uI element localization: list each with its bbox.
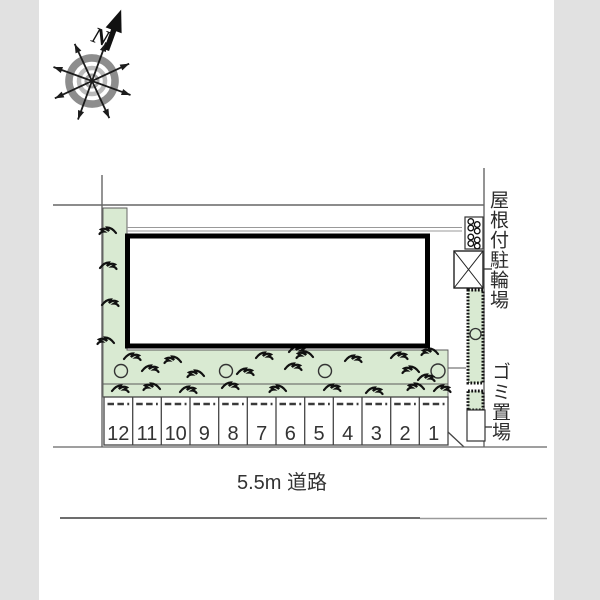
compass: N <box>39 0 156 134</box>
site-plan-page: N <box>0 0 600 600</box>
stall-number: 4 <box>342 423 353 445</box>
stall-number: 1 <box>428 423 439 445</box>
label-garbage-area: ゴミ置場 <box>490 362 509 442</box>
building-footprint <box>128 236 428 346</box>
garbage-box <box>467 410 485 441</box>
stall-number: 9 <box>199 423 210 445</box>
stall-number: 11 <box>137 423 158 445</box>
covered-bicycle-parking-box <box>454 251 483 288</box>
stall-number: 2 <box>399 423 410 445</box>
parking-row: 12 11 10 9 8 7 6 5 4 3 2 1 <box>104 397 464 447</box>
bicycle-rack-icon <box>465 217 483 249</box>
hedge-strip-small <box>468 391 483 410</box>
curb-diagonal <box>448 432 464 447</box>
road-label: 5.5m 道路 <box>237 471 327 494</box>
stall-number: 3 <box>371 423 382 445</box>
stall-number: 5 <box>313 423 324 445</box>
site-plan-drawing: N <box>0 0 600 600</box>
eaves-lines <box>127 228 462 232</box>
stall-number: 10 <box>165 423 187 445</box>
stall-number: 8 <box>227 423 238 445</box>
stall-number: 6 <box>285 423 296 445</box>
label-covered-bicycle-parking: 屋根付駐輪場 <box>488 190 507 310</box>
stall-number: 7 <box>256 423 267 445</box>
stall-number: 12 <box>107 423 129 445</box>
